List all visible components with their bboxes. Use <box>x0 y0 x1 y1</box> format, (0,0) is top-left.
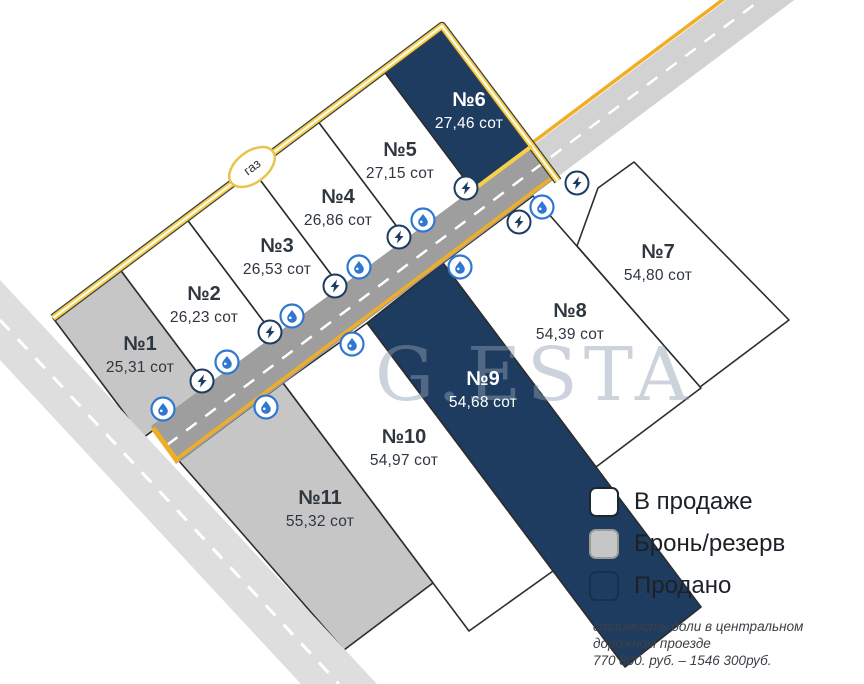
plot-5-number: №5 <box>383 139 416 161</box>
electricity-icon <box>324 275 347 298</box>
electricity-icon <box>566 172 589 195</box>
price-note-line: стоимость доли в центральном <box>593 618 803 635</box>
price-note: стоимость доли в центральном дорожном пр… <box>593 618 803 669</box>
plot-11-number: №11 <box>298 487 341 509</box>
plot-9-number: №9 <box>466 368 499 390</box>
price-note-line: 770 800. руб. – 1546 300руб. <box>593 652 803 669</box>
electricity-icon <box>455 177 478 200</box>
plot-7-area: 54,80 сот <box>624 267 692 284</box>
site-plan-screen: G.ESTA газ №1 25,31 сот №2 26,23 сот №3 … <box>0 0 864 684</box>
plot-7-number: №7 <box>641 241 674 263</box>
plot-2-area: 26,23 сот <box>170 309 238 326</box>
price-note-line: дорожном проезде <box>593 635 803 652</box>
legend-label: Продано <box>634 572 731 600</box>
legend-swatch-sold <box>589 571 619 601</box>
water-icon <box>531 196 554 219</box>
legend-label: Бронь/резерв <box>634 530 785 558</box>
water-icon <box>348 256 371 279</box>
plot-10-area: 54,97 сот <box>370 452 438 469</box>
water-icon <box>341 333 364 356</box>
water-icon <box>281 305 304 328</box>
water-icon <box>412 209 435 232</box>
electricity-icon <box>508 211 531 234</box>
legend: В продаже Бронь/резерв Продано <box>589 487 785 613</box>
electricity-icon <box>259 321 282 344</box>
plot-11-area: 55,32 сот <box>286 513 354 530</box>
plot-3-number: №3 <box>260 235 293 257</box>
watermark: G.ESTA <box>375 332 694 418</box>
plot-6-number: №6 <box>452 89 485 111</box>
central-road-upper-section <box>532 0 801 178</box>
water-icon <box>152 398 175 421</box>
plot-10-number: №10 <box>382 426 427 448</box>
legend-item-sold: Продано <box>589 571 785 601</box>
water-icon <box>449 256 472 279</box>
plot-8-area: 54,39 сот <box>536 326 604 343</box>
legend-label: В продаже <box>634 488 753 516</box>
plot-4-number: №4 <box>321 186 355 208</box>
plot-3-area: 26,53 сот <box>243 261 311 278</box>
legend-swatch-reserved <box>589 529 619 559</box>
plot-1-area: 25,31 сот <box>106 359 174 376</box>
legend-item-available: В продаже <box>589 487 785 517</box>
plot-6-area: 27,46 сот <box>435 115 503 132</box>
legend-item-reserved: Бронь/резерв <box>589 529 785 559</box>
plot-2-number: №2 <box>187 283 220 305</box>
plot-4-area: 26,86 сот <box>304 212 372 229</box>
electricity-icon <box>191 370 214 393</box>
electricity-icon <box>388 226 411 249</box>
plot-8-number: №8 <box>553 300 586 322</box>
plot-9-area: 54,68 сот <box>449 394 517 411</box>
plot-5-area: 27,15 сот <box>366 165 434 182</box>
plot-1-number: №1 <box>123 333 156 355</box>
legend-swatch-available <box>589 487 619 517</box>
water-icon <box>255 396 278 419</box>
water-icon <box>216 351 239 374</box>
